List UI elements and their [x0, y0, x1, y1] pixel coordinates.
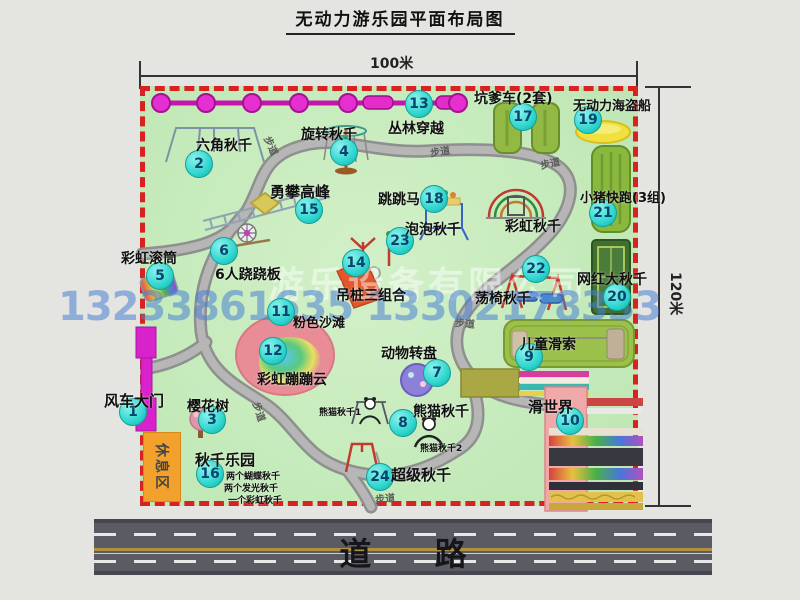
attraction-label-9: 儿童滑索 — [520, 334, 576, 354]
attraction-label-6: 6人跷跷板 — [215, 264, 281, 284]
attraction-label-7: 动物转盘 — [381, 343, 437, 363]
attraction-label-24: 超级秋千 — [391, 464, 451, 485]
attraction-label-15: 勇攀高峰 — [270, 181, 330, 202]
walkway-label-1: 步道 — [261, 133, 283, 157]
attraction-label-23: 泡泡秋千 — [405, 219, 461, 239]
attraction-label-14: 吊桩三组合 — [336, 285, 406, 305]
swing-park-note-3: 一个彩虹秋千 — [228, 493, 282, 506]
walkway-label-3: 步道 — [539, 153, 562, 172]
attraction-label-12: 彩虹蹦蹦云 — [257, 369, 327, 389]
attraction-label-10: 滑世界 — [528, 396, 573, 417]
rainbow-swing-label: 彩虹秋千 — [505, 216, 561, 236]
attraction-badge-13: 13 — [405, 90, 433, 118]
attraction-label-17: 坑爹车(2套) — [474, 88, 553, 108]
attraction-badge-11: 11 — [267, 298, 295, 326]
attraction-badge-18: 18 — [420, 185, 448, 213]
walkway-label-4: 步道 — [454, 314, 475, 331]
attraction-badge-22: 22 — [522, 255, 550, 283]
attraction-label-20: 网红大秋千 — [577, 269, 647, 289]
attraction-label-16: 秋千乐园 — [195, 449, 255, 470]
panda-swing-1-label: 熊猫秋千1 — [319, 405, 361, 418]
attraction-label-5: 彩虹滚筒 — [121, 248, 177, 268]
attraction-badge-6: 6 — [210, 237, 238, 265]
attraction-label-11: 粉色沙滩 — [293, 312, 345, 331]
attraction-label-3: 樱花树 — [187, 396, 229, 416]
attraction-label-13: 丛林穿越 — [388, 118, 444, 138]
attraction-badge-24: 24 — [366, 463, 394, 491]
walkway-label-2: 步道 — [429, 142, 451, 160]
attractions-layer: 1风车大门2六角秋千3樱花树4旋转秋千5彩虹滚筒66人跷跷板7动物转盘8熊猫秋千… — [0, 0, 800, 600]
walkway-label-6: 步道 — [374, 489, 395, 506]
playground-layout-map: 无动力游乐园平面布局图 100米 120米 — [0, 0, 800, 600]
attraction-label-21: 小猪快跑(3组) — [580, 187, 666, 206]
walkway-label-5: 步道 — [250, 400, 270, 424]
attraction-label-8: 熊猫秋千 — [413, 401, 469, 421]
panda-swing-2-label: 熊猫秋千2 — [420, 441, 462, 454]
attraction-label-2: 六角秋千 — [196, 135, 252, 155]
attraction-label-1: 风车大门 — [104, 390, 164, 411]
attraction-label-22: 荡椅秋千 — [475, 288, 531, 308]
attraction-label-18: 跳跳马 — [378, 189, 420, 209]
attraction-label-19: 无动力海盗船 — [573, 95, 651, 114]
attraction-label-4: 旋转秋千 — [301, 124, 357, 144]
attraction-badge-14: 14 — [342, 249, 370, 277]
attraction-badge-12: 12 — [259, 337, 287, 365]
attraction-badge-7: 7 — [423, 359, 451, 387]
